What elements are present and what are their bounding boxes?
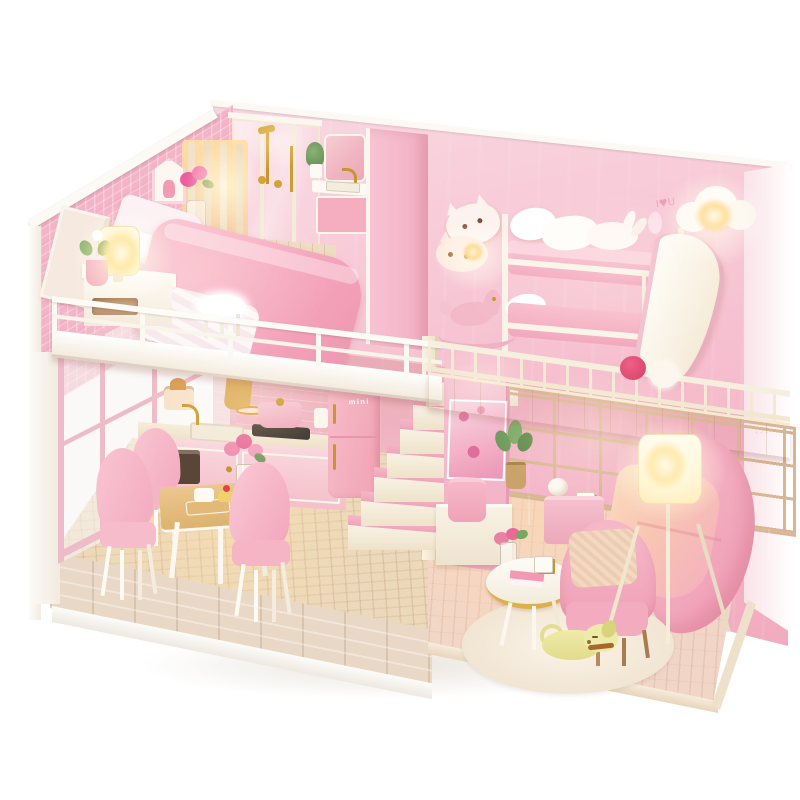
table-leg (218, 526, 223, 584)
horse-head (481, 288, 505, 316)
gold-shower-pipe2 (290, 146, 293, 192)
plant-leaf (95, 238, 112, 257)
dollhouse-photo: mini (0, 0, 800, 800)
white-rose (548, 478, 568, 496)
table-mug (534, 556, 553, 573)
pot-knob (276, 398, 284, 406)
dog-nose (587, 640, 591, 644)
dining-chair-right (230, 462, 296, 620)
duvet-fold (162, 222, 360, 286)
cream-cake (194, 488, 214, 502)
left-lower-wall-panel (32, 352, 60, 604)
flower-leaf (201, 178, 215, 190)
strawberry (223, 485, 230, 492)
floor-lamp-shade (638, 434, 702, 504)
blossom-dot-1 (459, 411, 469, 421)
chair-backrest (93, 446, 155, 534)
coffee-table-leg (499, 602, 512, 646)
cloud-light (676, 184, 760, 242)
lamp-pole (666, 502, 670, 532)
chair-leg (234, 564, 245, 616)
plant-pot (86, 256, 108, 286)
cat-eye (448, 252, 453, 257)
lamp-tripod-leg (666, 530, 670, 644)
cloud-lobe (724, 200, 756, 230)
plant-flower (92, 230, 103, 241)
white-jar (314, 408, 328, 428)
cat-eye (462, 224, 468, 230)
door-frame-v1 (58, 349, 64, 564)
bedroom-plant (78, 230, 114, 290)
chair-leg (101, 546, 112, 596)
coffee-table-leg (532, 606, 536, 650)
console-plant (494, 420, 534, 490)
fridge-handle-top (333, 404, 336, 424)
decor-figure (163, 180, 175, 198)
lamp-base (113, 272, 123, 282)
pink-speaker (448, 478, 486, 522)
chair-leg (272, 570, 276, 622)
gold-handle-1 (258, 176, 266, 184)
bathroom-plant-pot (310, 164, 322, 178)
partition-wall (366, 128, 428, 351)
plant-pot (506, 462, 526, 489)
chair-leg (147, 544, 158, 594)
sleeping-dog (540, 616, 624, 674)
gold-handle-2 (274, 180, 282, 188)
cat-light-lower (436, 236, 488, 272)
chair-leg (254, 570, 258, 622)
white-pompom (650, 362, 678, 388)
flower-bloom (192, 166, 207, 180)
kitchen-faucet (182, 404, 199, 425)
cat-eye (464, 254, 469, 259)
bathroom-plant (306, 142, 324, 166)
dog-eye (592, 636, 598, 638)
floor-lamp (628, 430, 712, 650)
blossom-dot-3 (467, 446, 479, 458)
toast-bread (170, 378, 186, 390)
chair-leg (120, 550, 124, 600)
red-pompom (620, 356, 646, 380)
chair-backrest (228, 460, 293, 551)
dining-chair-left (96, 448, 160, 598)
chair-leg (280, 562, 291, 614)
gold-shower-pipe (266, 132, 269, 184)
chair-leg (138, 550, 142, 600)
cat-eye (477, 218, 483, 224)
fridge-handle-bottom (333, 444, 336, 470)
horse-eye (492, 297, 496, 301)
plant-leaf (77, 238, 95, 258)
